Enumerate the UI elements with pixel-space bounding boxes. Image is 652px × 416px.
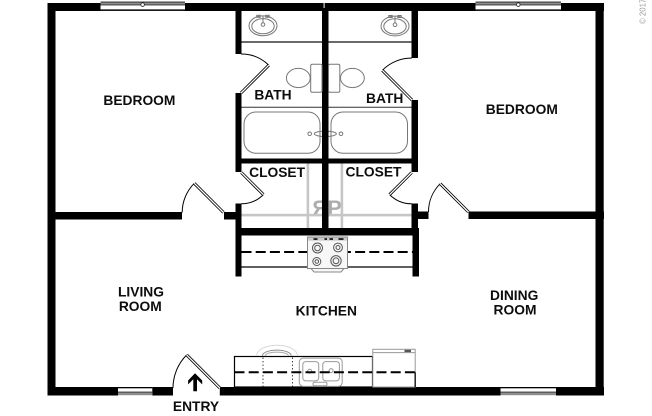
svg-text:© 2017: © 2017 (639, 0, 648, 24)
svg-text:CLOSET: CLOSET (346, 164, 403, 179)
svg-text:LIVING: LIVING (118, 285, 164, 300)
svg-text:ROOM: ROOM (119, 299, 162, 314)
svg-text:BATH: BATH (366, 91, 403, 106)
svg-text:KITCHEN: KITCHEN (296, 303, 357, 318)
svg-text:DINING: DINING (490, 288, 538, 303)
svg-text:ROOM: ROOM (494, 303, 537, 318)
svg-text:ENTRY: ENTRY (173, 399, 219, 414)
svg-text:BATH: BATH (254, 88, 291, 103)
svg-text:BEDROOM: BEDROOM (486, 102, 558, 117)
svg-text:BEDROOM: BEDROOM (103, 93, 175, 108)
svg-text:CLOSET: CLOSET (249, 165, 306, 180)
